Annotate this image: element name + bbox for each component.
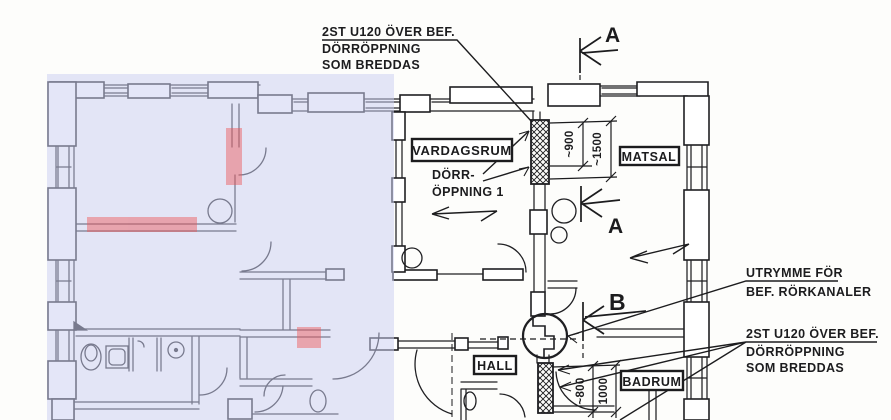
red-highlight-wall-horizontal — [87, 217, 197, 232]
section-letter-a-top: A — [605, 24, 620, 47]
top-note-line3: SOM BREDDAS — [322, 58, 420, 72]
dim-1500: ~1500 — [592, 132, 604, 166]
door-note-line2: ÖPPNING 1 — [432, 184, 504, 199]
matsal-fixture-2 — [551, 227, 567, 243]
pipe-note-line1: UTRYMME FÖR — [746, 265, 843, 280]
pipe-note-line2: BEF. RÖRKANALER — [746, 284, 871, 299]
section-letter-b: B — [609, 289, 626, 315]
shaft-step-wall — [533, 318, 554, 358]
red-highlight-wall-small — [297, 327, 321, 348]
right-note-line2: DÖRRÖPPNING — [746, 344, 845, 359]
top-note-line1: 2ST U120 ÖVER BEF. — [322, 24, 455, 39]
top-note-line2: DÖRRÖPPNING — [322, 41, 421, 56]
dim-1000: 1000 — [598, 378, 610, 405]
section-letter-a-mid: A — [608, 215, 623, 238]
dimensions — [550, 116, 621, 418]
room-label-matsal: MATSAL — [622, 150, 677, 164]
room-label-hall: HALL — [477, 359, 513, 373]
red-highlight-wall-vertical — [226, 128, 242, 185]
hatched-wall-bottom — [538, 363, 553, 413]
floor-plan-screenshot: ~900 ~1500 ~800 1000 A A B — [0, 0, 891, 420]
highlight-zone-overlay — [47, 74, 394, 420]
right-note-line1: 2ST U120 ÖVER BEF. — [746, 326, 879, 341]
matsal-fixture-1 — [552, 199, 576, 223]
direction-arrow-left — [432, 207, 497, 221]
pipe-shaft-detail — [523, 314, 567, 358]
right-note-line3: SOM BREDDAS — [746, 361, 844, 375]
room-label-vardagsrum: VARDAGSRUM — [412, 143, 512, 158]
door-note-line1: DÖRR- — [432, 167, 475, 182]
floor-plan-svg: ~900 ~1500 ~800 1000 A A B — [0, 0, 891, 420]
direction-arrow-matsal — [630, 244, 689, 263]
room-label-badrum: BADRUM — [622, 375, 681, 389]
hatched-wall-top — [531, 120, 549, 184]
dim-900: ~900 — [564, 130, 576, 157]
